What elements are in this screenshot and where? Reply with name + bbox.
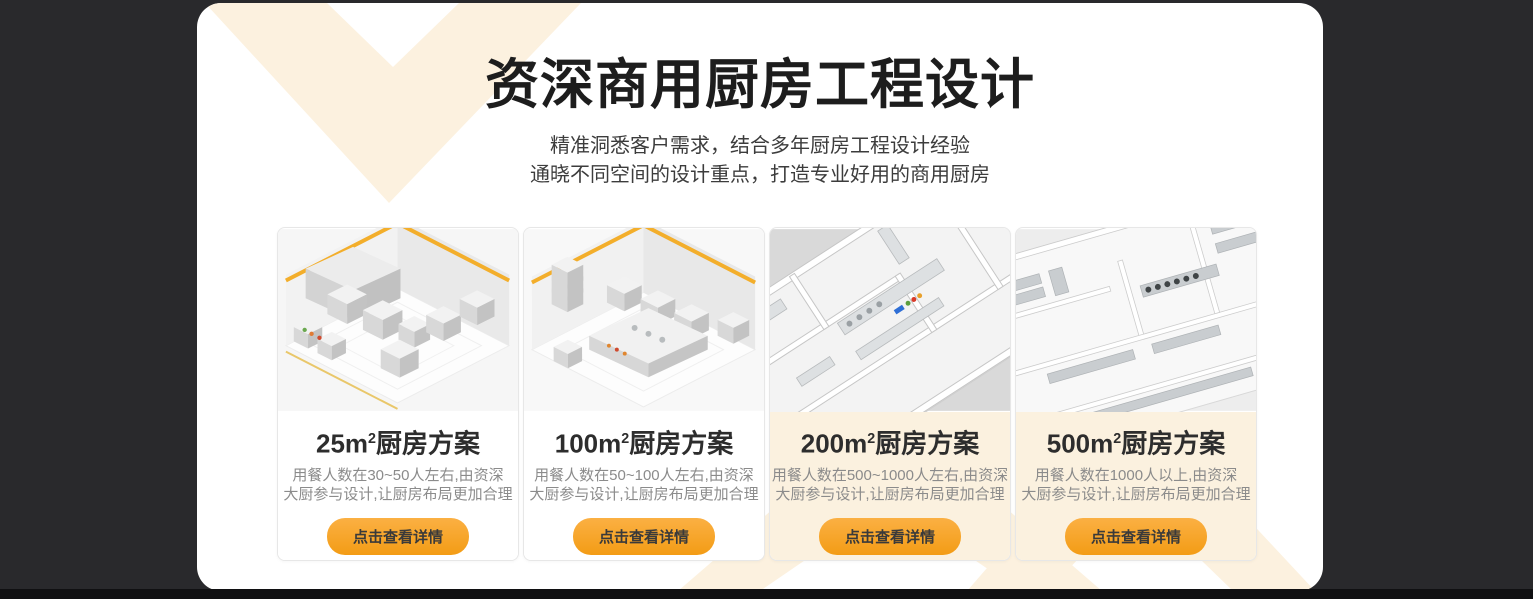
card-size: 25m	[316, 429, 368, 459]
subtitle-line-1: 精准洞悉客户需求，结合多年厨房工程设计经验	[197, 132, 1323, 161]
page: 资深商用厨房工程设计 精准洞悉客户需求，结合多年厨房工程设计经验 通晓不同空间的…	[0, 0, 1533, 599]
plan-card-200: 200m2厨房方案 用餐人数在500~1000人左右,由资深大厨参与设计,让厨房…	[769, 227, 1011, 561]
card-size: 200m	[801, 429, 868, 459]
content-panel: 资深商用厨房工程设计 精准洞悉客户需求，结合多年厨房工程设计经验 通晓不同空间的…	[197, 3, 1323, 591]
page-title: 资深商用厨房工程设计	[197, 55, 1323, 115]
view-details-button[interactable]: 点击查看详情	[327, 518, 469, 555]
card-title: 100m2厨房方案	[524, 425, 764, 458]
view-details-button[interactable]: 点击查看详情	[573, 518, 715, 555]
plan-card-200-info: 200m2厨房方案 用餐人数在500~1000人左右,由资深大厨参与设计,让厨房…	[770, 412, 1010, 560]
card-description: 用餐人数在50~100人左右,由资深大厨参与设计,让厨房布局更加合理	[524, 466, 764, 504]
kitchen-render-100-image	[524, 228, 764, 412]
card-desc-line: 用餐人数在500~1000人左右,由资深	[772, 467, 1008, 484]
view-details-button[interactable]: 点击查看详情	[1065, 518, 1207, 555]
plan-card-500-info: 500m2厨房方案 用餐人数在1000人以上,由资深大厨参与设计,让厨房布局更加…	[1016, 412, 1256, 560]
card-desc-line: 大厨参与设计,让厨房布局更加合理	[283, 486, 512, 503]
plan-card-25-info: 25m2厨房方案 用餐人数在30~50人左右,由资深大厨参与设计,让厨房布局更加…	[278, 412, 518, 560]
view-details-button[interactable]: 点击查看详情	[819, 518, 961, 555]
card-title: 500m2厨房方案	[1016, 425, 1256, 458]
card-size: 500m	[1047, 429, 1114, 459]
card-description: 用餐人数在30~50人左右,由资深大厨参与设计,让厨房布局更加合理	[278, 466, 518, 504]
plan-card-25: 25m2厨房方案 用餐人数在30~50人左右,由资深大厨参与设计,让厨房布局更加…	[277, 227, 519, 561]
card-desc-line: 用餐人数在30~50人左右,由资深	[292, 467, 503, 484]
plan-card-100-info: 100m2厨房方案 用餐人数在50~100人左右,由资深大厨参与设计,让厨房布局…	[524, 412, 764, 560]
card-name: 厨房方案	[1121, 429, 1225, 459]
card-desc-line: 大厨参与设计,让厨房布局更加合理	[775, 486, 1004, 503]
card-desc-line: 大厨参与设计,让厨房布局更加合理	[529, 486, 758, 503]
card-desc-line: 用餐人数在1000人以上,由资深	[1035, 467, 1238, 484]
card-name: 厨房方案	[376, 429, 480, 459]
plan-card-500: 500m2厨房方案 用餐人数在1000人以上,由资深大厨参与设计,让厨房布局更加…	[1015, 227, 1257, 561]
card-title: 25m2厨房方案	[278, 425, 518, 458]
kitchen-render-200-image	[770, 228, 1010, 412]
card-desc-line: 大厨参与设计,让厨房布局更加合理	[1021, 486, 1250, 503]
subtitle-line-2: 通晓不同空间的设计重点，打造专业好用的商用厨房	[197, 161, 1323, 190]
bottom-bar	[0, 589, 1533, 599]
card-size: 100m	[555, 429, 622, 459]
card-name: 厨房方案	[629, 429, 733, 459]
kitchen-render-25-image	[278, 228, 518, 412]
card-description: 用餐人数在500~1000人左右,由资深大厨参与设计,让厨房布局更加合理	[770, 466, 1010, 504]
card-desc-line: 用餐人数在50~100人左右,由资深	[534, 467, 754, 484]
card-description: 用餐人数在1000人以上,由资深大厨参与设计,让厨房布局更加合理	[1016, 466, 1256, 504]
card-title: 200m2厨房方案	[770, 425, 1010, 458]
card-size-sup: 2	[368, 431, 376, 447]
card-name: 厨房方案	[875, 429, 979, 459]
plan-card-100: 100m2厨房方案 用餐人数在50~100人左右,由资深大厨参与设计,让厨房布局…	[523, 227, 765, 561]
kitchen-render-500-image	[1016, 228, 1256, 412]
plan-card-row: 25m2厨房方案 用餐人数在30~50人左右,由资深大厨参与设计,让厨房布局更加…	[277, 227, 1257, 561]
